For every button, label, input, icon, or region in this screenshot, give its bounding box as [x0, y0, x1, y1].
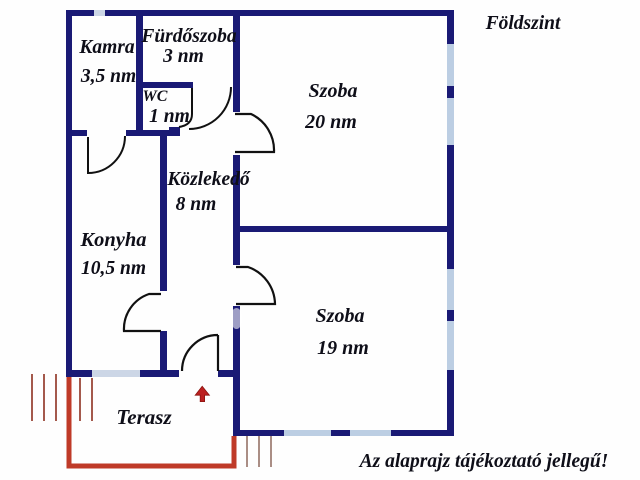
svg-text:3 nm: 3 nm — [162, 46, 204, 67]
svg-text:Közlekedő: Közlekedő — [166, 169, 251, 190]
svg-text:Kamra: Kamra — [78, 37, 135, 58]
svg-text:10,5 nm: 10,5 nm — [81, 258, 146, 279]
svg-text:Szoba: Szoba — [309, 80, 358, 102]
svg-text:Konyha: Konyha — [79, 229, 146, 251]
svg-text:Fürdőszoba: Fürdőszoba — [140, 26, 237, 47]
svg-text:1 nm: 1 nm — [149, 106, 190, 127]
svg-text:Terasz: Terasz — [116, 405, 172, 429]
svg-text:Földszint: Földszint — [485, 13, 561, 34]
svg-text:20 nm: 20 nm — [304, 111, 357, 133]
svg-text:Az alaprajz tájékoztató jelleg: Az alaprajz tájékoztató jellegű! — [358, 451, 609, 472]
svg-text:3,5 nm: 3,5 nm — [80, 66, 136, 87]
svg-text:WC: WC — [143, 88, 168, 105]
svg-text:Szoba: Szoba — [316, 305, 365, 327]
svg-text:19 nm: 19 nm — [317, 337, 369, 359]
svg-text:8 nm: 8 nm — [176, 194, 217, 215]
